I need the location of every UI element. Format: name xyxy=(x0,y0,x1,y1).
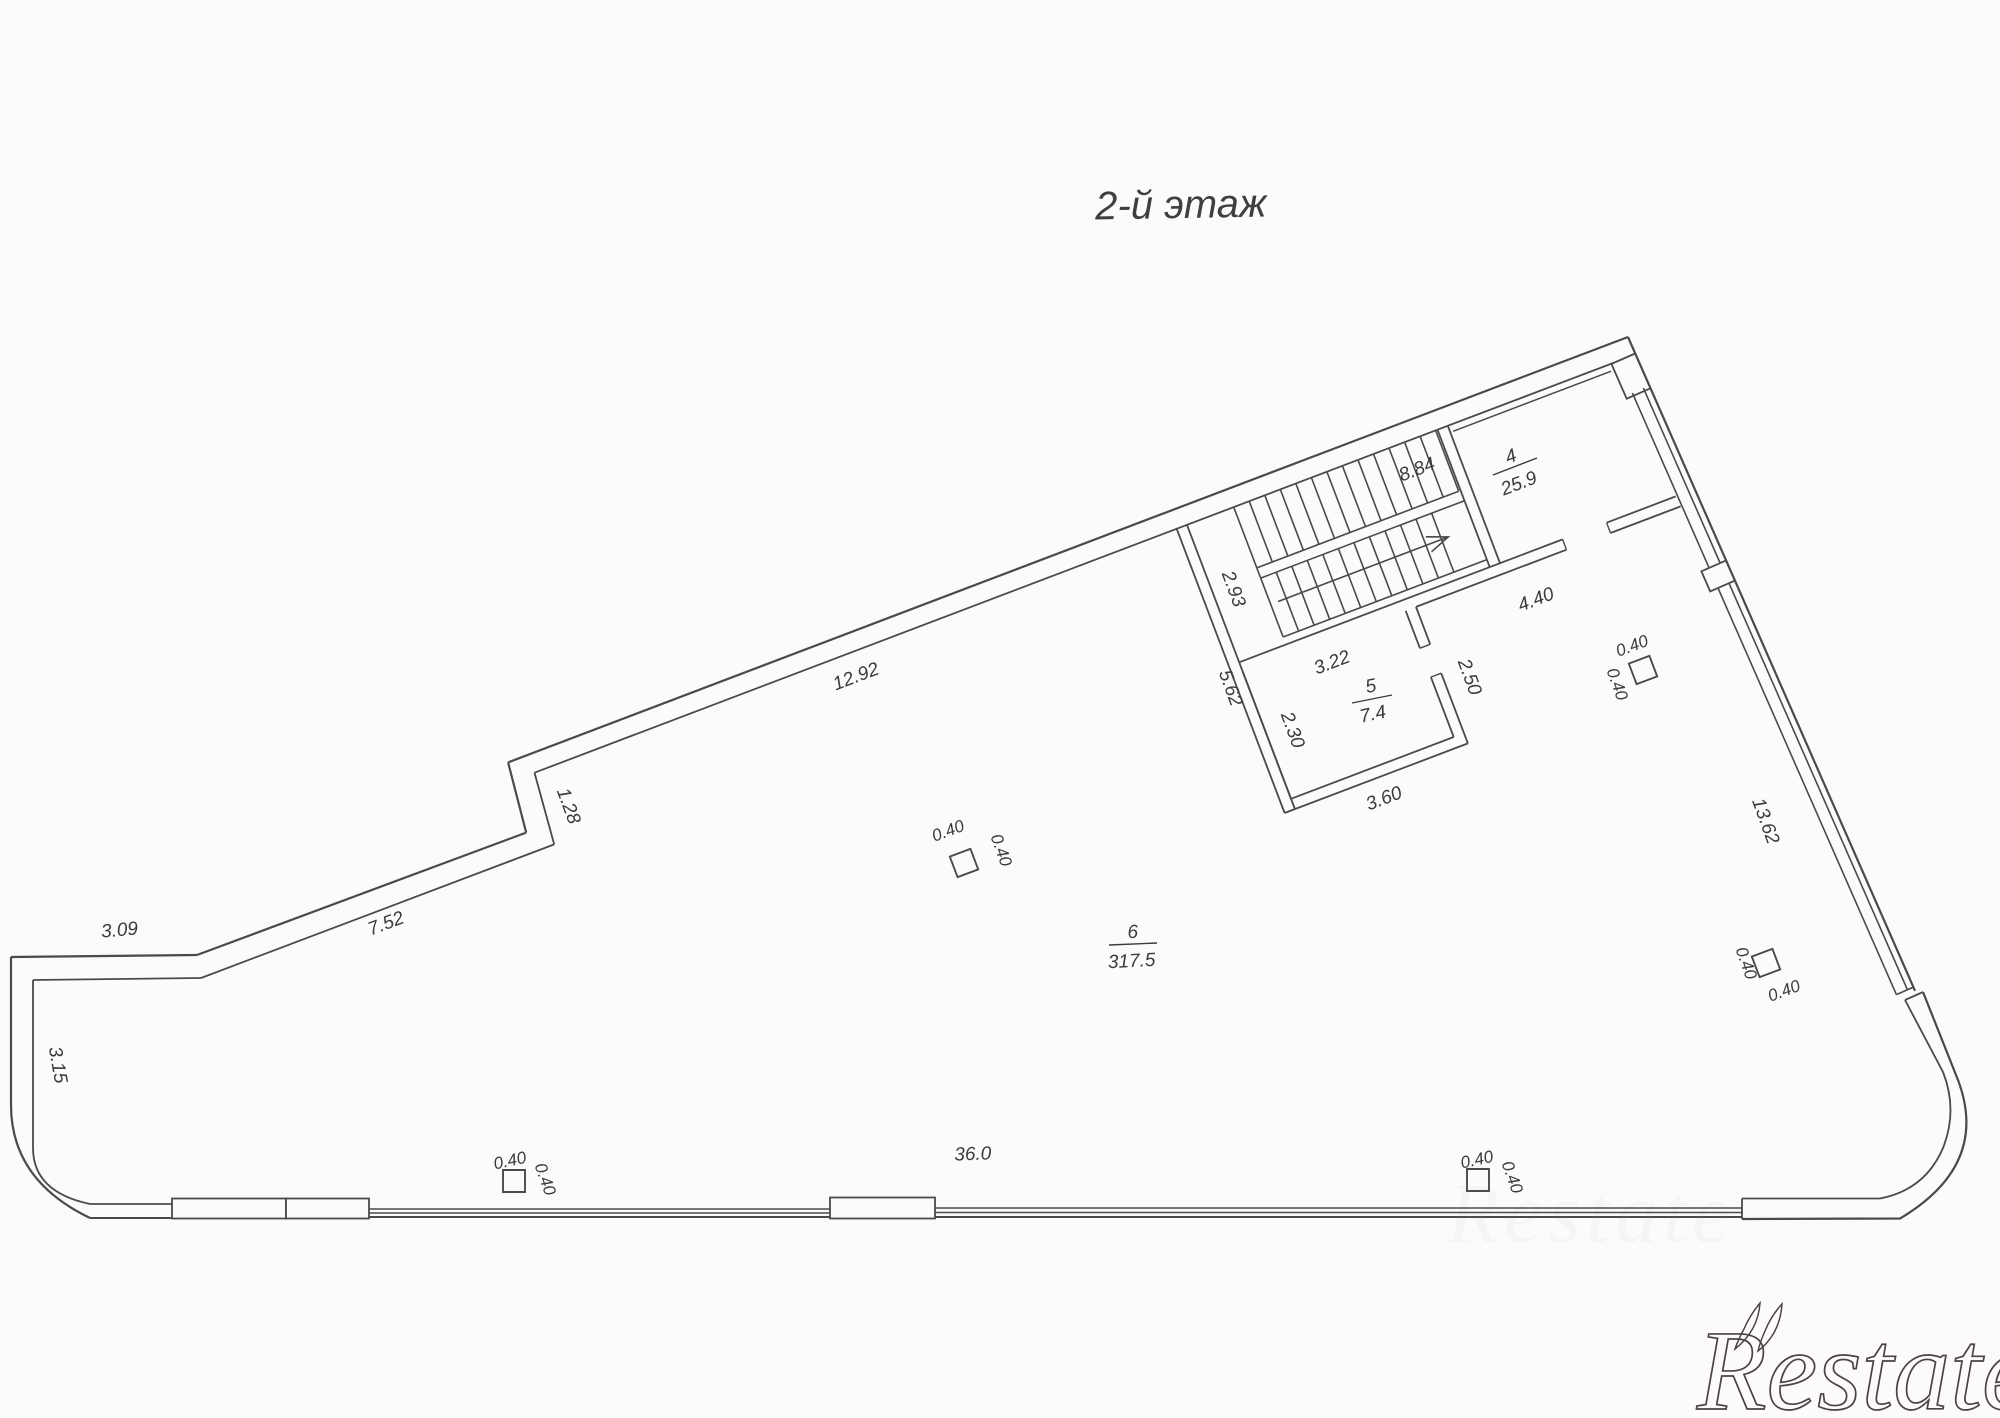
svg-text:Restate: Restate xyxy=(1446,1165,1735,1261)
svg-text:25.9: 25.9 xyxy=(1497,467,1540,500)
svg-text:2.50: 2.50 xyxy=(1453,655,1486,698)
svg-text:0.40: 0.40 xyxy=(1732,944,1761,982)
svg-text:2.30: 2.30 xyxy=(1276,708,1309,751)
svg-text:7.52: 7.52 xyxy=(365,907,407,940)
svg-text:7.4: 7.4 xyxy=(1358,702,1388,728)
svg-text:5.62: 5.62 xyxy=(1214,667,1247,709)
svg-text:3.22: 3.22 xyxy=(1311,646,1353,679)
svg-text:1.28: 1.28 xyxy=(552,785,585,827)
svg-text:8.84: 8.84 xyxy=(1396,453,1438,486)
svg-text:3.09: 3.09 xyxy=(100,918,139,942)
svg-text:0.40: 0.40 xyxy=(1613,631,1651,661)
svg-text:2.93: 2.93 xyxy=(1217,567,1250,610)
svg-text:0.40: 0.40 xyxy=(929,816,967,846)
svg-text:13.62: 13.62 xyxy=(1747,795,1783,847)
svg-text:0.40: 0.40 xyxy=(1603,665,1632,703)
svg-text:0.40: 0.40 xyxy=(531,1160,560,1198)
svg-text:12.92: 12.92 xyxy=(830,658,882,695)
svg-text:2-й этаж: 2-й этаж xyxy=(1094,181,1268,228)
svg-text:4.40: 4.40 xyxy=(1515,583,1557,616)
svg-text:3.60: 3.60 xyxy=(1363,782,1405,815)
svg-text:5: 5 xyxy=(1363,675,1378,698)
svg-text:Restate: Restate xyxy=(1696,1307,2000,1413)
svg-text:6: 6 xyxy=(1127,922,1139,944)
svg-text:317.5: 317.5 xyxy=(1107,950,1156,973)
svg-text:0.40: 0.40 xyxy=(987,831,1016,869)
svg-text:36.0: 36.0 xyxy=(954,1143,992,1165)
svg-text:0.40: 0.40 xyxy=(1765,976,1803,1006)
svg-text:3.15: 3.15 xyxy=(44,1045,71,1085)
